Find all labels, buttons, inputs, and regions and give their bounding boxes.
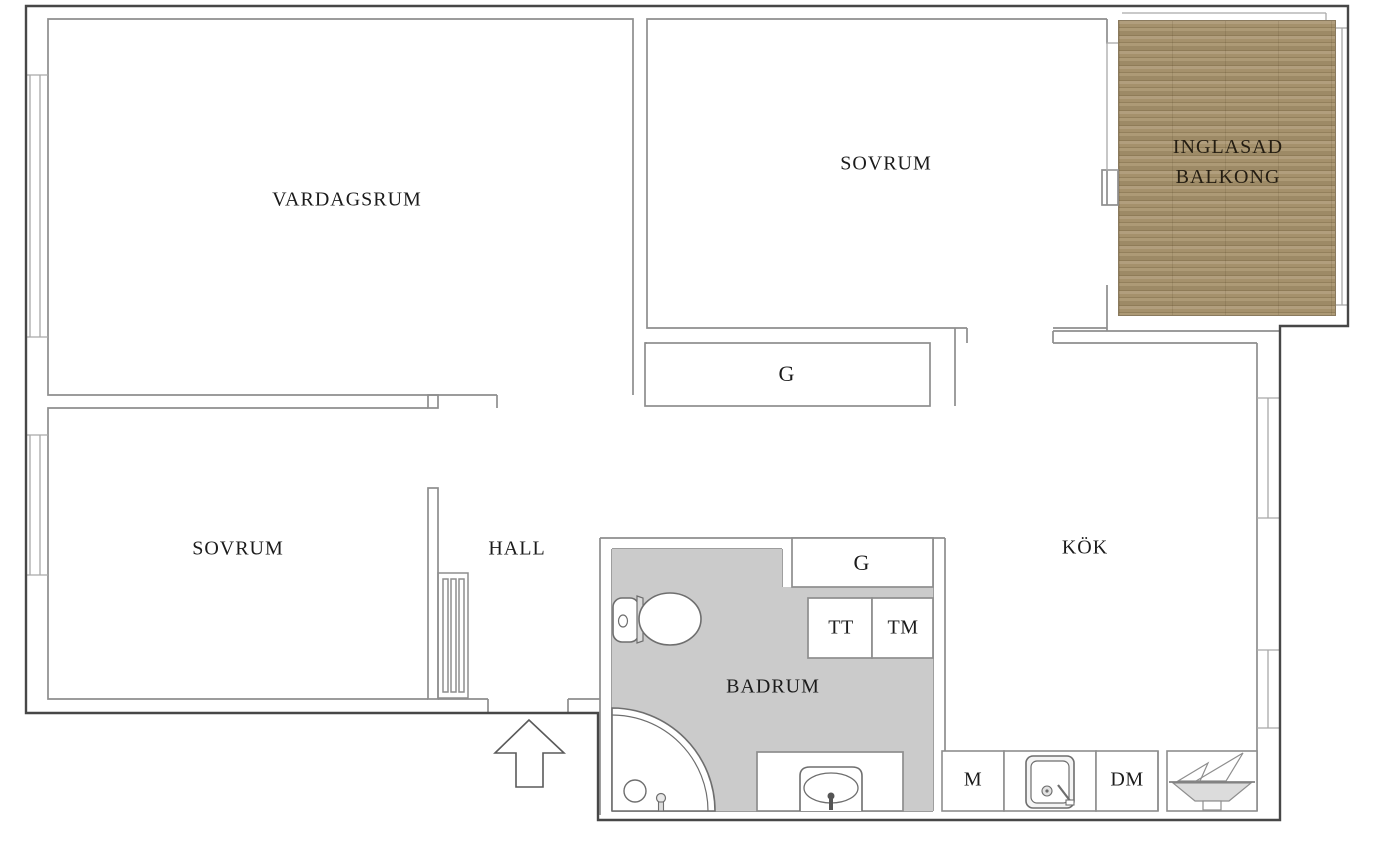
sovrum-bottom-right-wall <box>428 488 438 699</box>
diskmaskin-box <box>1096 751 1158 811</box>
kitchen-sink-icon <box>1026 756 1074 808</box>
hall-bottom-wall <box>438 699 600 713</box>
m-unit-box <box>942 751 1004 811</box>
torktumlare-box <box>808 598 872 658</box>
wall-tab <box>428 395 438 408</box>
window-icon-kitchen-2 <box>1257 650 1280 728</box>
floor-plan-drawing <box>0 0 1397 841</box>
vardagsrum-walls <box>48 19 633 395</box>
window-icon-balcony-top <box>1122 13 1326 20</box>
radiator-icon <box>438 573 468 698</box>
tvattmaskin-box <box>872 598 933 658</box>
floor-drain-icon <box>624 780 646 802</box>
badrum-left-wall <box>600 538 612 815</box>
window-icon-sovrum-bottom <box>26 435 48 575</box>
toilet-icon <box>613 593 701 645</box>
sovrum-bottom-walls <box>48 408 428 699</box>
sovrum-top-walls <box>647 19 1107 328</box>
window-icon-vardagsrum <box>26 75 48 337</box>
washbasin-icon <box>800 767 862 811</box>
balcony-sill <box>1102 170 1118 205</box>
garderob-badrum-box <box>792 538 933 587</box>
floor-plan: VARDAGSRUM SOVRUM INGLASADBALKONG G SOVR… <box>0 0 1397 841</box>
window-icon-balcony-right <box>1336 28 1348 305</box>
sovrum-door-jambs <box>645 328 967 406</box>
window-icon-kitchen-1 <box>1257 398 1280 518</box>
entrance-arrow-icon <box>495 720 564 787</box>
kitchen-top-wall <box>1053 331 1280 343</box>
garderob-sovrum-box <box>645 343 930 406</box>
window-icon-balcony-left <box>1106 43 1118 170</box>
